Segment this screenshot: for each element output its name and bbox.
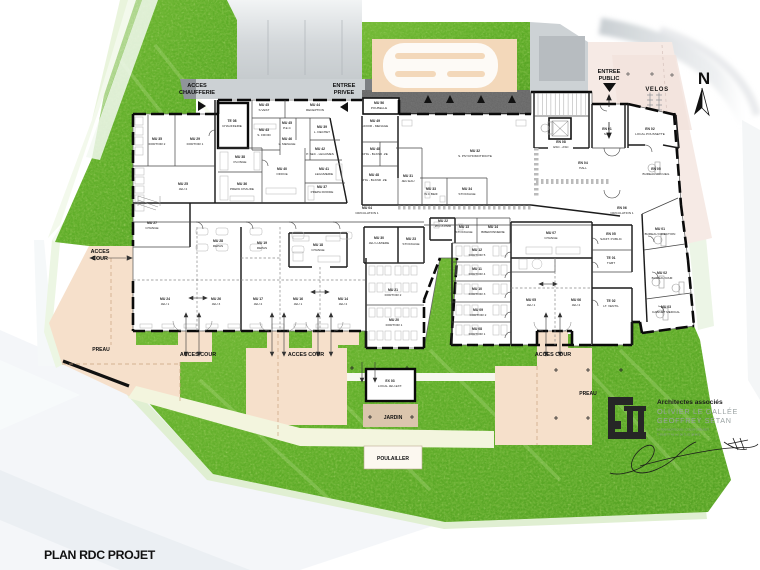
- svg-text:ENTREE: ENTREE: [598, 69, 621, 75]
- svg-text:EN 06: EN 06: [617, 206, 627, 210]
- svg-text:16 RUE MONTLOUIS / COEUR CREUS: 16 RUE MONTLOUIS / COEUR CREUSOT: [657, 428, 709, 432]
- svg-text:RECEPTION: RECEPTION: [306, 108, 324, 112]
- svg-text:TE 08: TE 08: [227, 119, 236, 123]
- svg-text:EN 05: EN 05: [651, 167, 661, 171]
- svg-text:JEU 2: JEU 2: [254, 302, 263, 306]
- svg-text:MU 48: MU 48: [370, 147, 380, 151]
- svg-text:BUREAU RAM: BUREAU RAM: [652, 276, 673, 280]
- svg-text:JEU 1: JEU 1: [161, 302, 170, 306]
- svg-text:JEU 3: JEU 3: [212, 302, 221, 306]
- svg-text:BUREAU DIRECTION: BUREAU DIRECTION: [645, 232, 676, 236]
- svg-text:MU 29: MU 29: [190, 137, 200, 141]
- svg-text:MU 26: MU 26: [211, 297, 221, 301]
- svg-text:JARDIN: JARDIN: [384, 415, 403, 421]
- svg-text:POUBELLE: POUBELLE: [371, 106, 387, 110]
- svg-text:LEGUMERIE: LEGUMERIE: [315, 172, 333, 176]
- svg-text:PLONGE: PLONGE: [234, 160, 247, 164]
- svg-text:STOCKAGE: STOCKAGE: [458, 192, 475, 196]
- svg-text:REPAS: REPAS: [257, 246, 267, 250]
- svg-text:OFFICE: OFFICE: [276, 172, 287, 176]
- svg-text:EN 02: EN 02: [645, 127, 655, 131]
- svg-text:EX 03: EX 03: [385, 379, 394, 383]
- svg-text:TE 01: TE 01: [606, 256, 615, 260]
- svg-text:GEOFFREY SETAN: GEOFFREY SETAN: [657, 416, 732, 425]
- svg-text:MU 25: MU 25: [178, 182, 188, 186]
- svg-text:MU 14: MU 14: [488, 225, 498, 229]
- svg-text:T. 03 85 77 41 .ml. 06 71 52 3: T. 03 85 77 41 .ml. 06 71 52 38 66 9: [657, 433, 701, 437]
- svg-text:PREPA FROIDE: PREPA FROIDE: [311, 190, 334, 194]
- svg-text:Architectes associés: Architectes associés: [657, 399, 723, 406]
- svg-text:CHG - BLKND .ZE: CHG - BLKND .ZE: [362, 152, 388, 156]
- svg-text:MU 21: MU 21: [388, 288, 398, 292]
- svg-text:TGBT: TGBT: [607, 261, 615, 265]
- svg-text:S.VEST: S.VEST: [258, 108, 269, 112]
- svg-text:MU 49: MU 49: [370, 119, 380, 123]
- svg-text:DORTOIR 2: DORTOIR 2: [385, 293, 402, 297]
- svg-text:VELOS: VELOS: [645, 87, 668, 93]
- svg-text:POULAILLER: POULAILLER: [377, 456, 409, 462]
- svg-text:MU 12: MU 12: [472, 248, 482, 252]
- svg-text:MU 08: MU 08: [472, 327, 482, 331]
- svg-text:MU 46: MU 46: [282, 137, 292, 141]
- svg-text:MU 24: MU 24: [160, 297, 170, 301]
- svg-text:MU 20: MU 20: [389, 318, 399, 322]
- svg-text:COUR: COUR: [92, 256, 108, 262]
- svg-text:MU 09: MU 09: [473, 308, 483, 312]
- svg-text:MU 19: MU 19: [257, 241, 267, 245]
- svg-text:OLIVIER LE GALLÉE: OLIVIER LE GALLÉE: [657, 407, 738, 416]
- svg-text:MU 18: MU 18: [313, 243, 323, 247]
- svg-text:EN 05: EN 05: [606, 232, 616, 236]
- svg-text:CIRCULATION 1: CIRCULATION 1: [610, 211, 634, 215]
- svg-text:MU 48: MU 48: [369, 173, 379, 177]
- svg-text:P.E.C: P.E.C: [283, 126, 291, 130]
- svg-text:EN 08: EN 08: [556, 140, 566, 144]
- svg-text:W.C A PMR: W.C A PMR: [435, 224, 452, 228]
- svg-text:L. DECHET: L. DECHET: [314, 130, 330, 134]
- svg-text:MU 41: MU 41: [319, 167, 329, 171]
- svg-text:HALL: HALL: [579, 166, 587, 170]
- svg-text:STOCKAGE: STOCKAGE: [402, 242, 419, 246]
- svg-text:ACCES COUR: ACCES COUR: [288, 352, 324, 358]
- svg-text:MU 32: MU 32: [470, 149, 480, 153]
- svg-text:TE 02: TE 02: [606, 299, 615, 303]
- svg-text:MU 45: MU 45: [282, 121, 292, 125]
- svg-text:MU 01: MU 01: [655, 227, 665, 231]
- svg-text:DORTOIR 2: DORTOIR 2: [149, 142, 166, 146]
- svg-text:ENTREE: ENTREE: [333, 83, 356, 89]
- svg-text:JEU 1: JEU 1: [294, 302, 303, 306]
- svg-text:JEU 2: JEU 2: [339, 302, 348, 306]
- svg-text:MU 14: MU 14: [338, 297, 348, 301]
- svg-text:MU 23: MU 23: [406, 237, 416, 241]
- svg-text:PLAN RDC PROJET: PLAN RDC PROJET: [44, 548, 156, 562]
- svg-text:MU 04: MU 04: [362, 206, 372, 210]
- svg-text:MU 45: MU 45: [259, 103, 269, 107]
- svg-text:MU 11: MU 11: [472, 267, 482, 271]
- svg-text:PREAU: PREAU: [579, 391, 597, 397]
- svg-text:JEU LUMIERE: JEU LUMIERE: [369, 241, 389, 245]
- svg-text:MU 44: MU 44: [310, 103, 320, 107]
- svg-text:CHAUFFERIE: CHAUFFERIE: [179, 90, 215, 96]
- svg-text:MU 27: MU 27: [147, 221, 157, 225]
- svg-text:PRIVEE: PRIVEE: [334, 90, 355, 96]
- svg-text:MU 02: MU 02: [657, 271, 667, 275]
- svg-text:CHANGE: CHANGE: [145, 226, 158, 230]
- svg-text:PREPA CHAUDE: PREPA CHAUDE: [230, 187, 254, 191]
- svg-text:MU 38: MU 38: [235, 155, 245, 159]
- svg-text:PUBLIC: PUBLIC: [599, 76, 620, 82]
- svg-text:DORTOIR 4: DORTOIR 4: [469, 272, 486, 276]
- svg-text:DORTOIR 5: DORTOIR 5: [469, 253, 486, 257]
- svg-text:S. FROID: S. FROID: [257, 133, 271, 137]
- svg-text:MU 06: MU 06: [571, 298, 581, 302]
- svg-text:JEU 2: JEU 2: [572, 303, 581, 307]
- svg-text:MU 33: MU 33: [426, 187, 436, 191]
- svg-text:MU 56: MU 56: [374, 101, 384, 105]
- svg-text:ACCES COUR: ACCES COUR: [535, 352, 571, 358]
- svg-text:EN 04: EN 04: [578, 161, 588, 165]
- svg-text:MU 03: MU 03: [661, 305, 671, 309]
- svg-text:W.C BEIF: W.C BEIF: [424, 192, 438, 196]
- svg-text:ACCES: ACCES: [187, 83, 207, 89]
- svg-text:MU 35: MU 35: [152, 137, 162, 141]
- svg-text:DORTOIR 1: DORTOIR 1: [469, 332, 486, 336]
- svg-text:CABINET MEDICAL: CABINET MEDICAL: [652, 310, 680, 314]
- svg-text:JEU 1: JEU 1: [527, 303, 536, 307]
- svg-text:ACCES COUR: ACCES COUR: [180, 352, 216, 358]
- svg-text:ACCES: ACCES: [91, 249, 110, 255]
- svg-text:MU 31: MU 31: [403, 174, 413, 178]
- svg-text:MU 16: MU 16: [293, 297, 303, 301]
- svg-text:JEU EAU: JEU EAU: [401, 179, 414, 183]
- svg-text:MU 07: MU 07: [546, 231, 556, 235]
- svg-text:P. SEC - LEGUMES: P. SEC - LEGUMES: [306, 152, 334, 156]
- svg-text:CIRCULATION 1: CIRCULATION 1: [355, 211, 379, 215]
- svg-text:MU 10: MU 10: [472, 287, 482, 291]
- svg-text:LIDOIR - MENAGE: LIDOIR - MENAGE: [362, 124, 388, 128]
- svg-text:N: N: [698, 69, 710, 88]
- svg-text:S. PSYCHOMOTRICITE: S. PSYCHOMOTRICITE: [458, 154, 492, 158]
- svg-text:MU 43: MU 43: [259, 128, 269, 132]
- svg-text:ESC - ASC: ESC - ASC: [553, 145, 569, 149]
- svg-text:BIBERONNERIE: BIBERONNERIE: [481, 230, 504, 234]
- svg-text:JEU 2: JEU 2: [179, 187, 188, 191]
- svg-text:MU 34: MU 34: [462, 187, 472, 191]
- svg-text:CHAUFFERIE: CHAUFFERIE: [222, 124, 242, 128]
- svg-text:MU 40: MU 40: [277, 167, 287, 171]
- svg-text:LOCAL JEU-EXT.: LOCAL JEU-EXT.: [378, 384, 402, 388]
- svg-text:EN 01: EN 01: [602, 127, 612, 131]
- svg-text:MU 42: MU 42: [315, 147, 325, 151]
- svg-text:MU 13: MU 13: [459, 225, 469, 229]
- svg-text:STOCKAGE: STOCKAGE: [455, 230, 472, 234]
- svg-text:MU 05: MU 05: [526, 298, 536, 302]
- svg-text:MU 28: MU 28: [213, 239, 223, 243]
- svg-text:LT. VENTIL: LT. VENTIL: [603, 304, 619, 308]
- svg-text:DORTOIR 3: DORTOIR 3: [469, 292, 486, 296]
- svg-text:MU 39: MU 39: [317, 125, 327, 129]
- svg-text:BUREAU ACCUEIL: BUREAU ACCUEIL: [643, 172, 670, 176]
- svg-text:LOCAL POUSSETTE: LOCAL POUSSETTE: [635, 132, 665, 136]
- svg-text:CHG - BLKND .ZE: CHG - BLKND .ZE: [361, 178, 387, 182]
- svg-text:MU 17: MU 17: [253, 297, 263, 301]
- svg-text:DORTOIR 1: DORTOIR 1: [386, 323, 403, 327]
- svg-text:REPAS: REPAS: [213, 244, 223, 248]
- svg-text:CHANGE: CHANGE: [311, 248, 324, 252]
- svg-text:L. MENAGE: L. MENAGE: [279, 142, 296, 146]
- svg-text:MU 22: MU 22: [438, 219, 448, 223]
- svg-text:MU 36: MU 36: [237, 182, 247, 186]
- svg-text:MU 30: MU 30: [374, 236, 384, 240]
- svg-text:MU 37: MU 37: [317, 185, 327, 189]
- svg-text:DORTOIR 1: DORTOIR 1: [187, 142, 204, 146]
- svg-text:SANIT. PUBLIC: SANIT. PUBLIC: [600, 237, 622, 241]
- svg-text:DORTOIR 2: DORTOIR 2: [470, 313, 487, 317]
- svg-text:SAS: SAS: [604, 132, 610, 136]
- svg-text:PREAU: PREAU: [92, 347, 110, 353]
- svg-text:CHANGE: CHANGE: [544, 236, 557, 240]
